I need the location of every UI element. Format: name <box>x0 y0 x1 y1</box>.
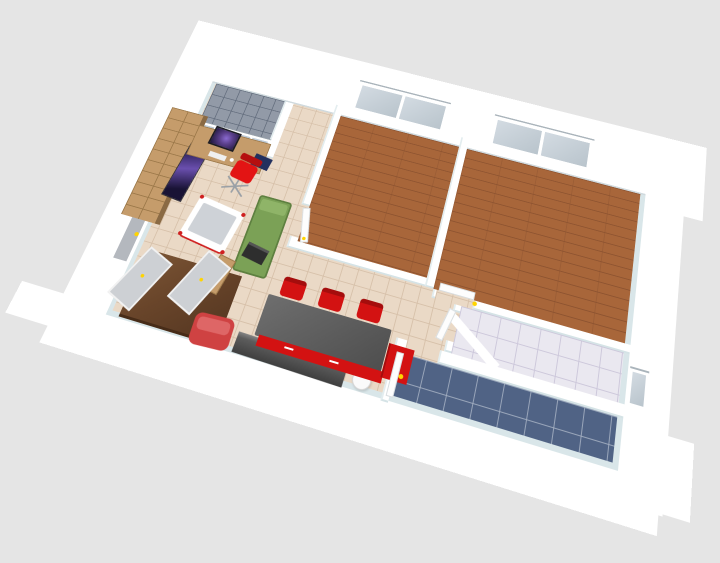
cabinet-handle <box>329 360 339 365</box>
window-pane <box>630 372 646 407</box>
render-viewport[interactable] <box>0 0 720 563</box>
window-pane <box>355 85 402 118</box>
daybed-pillow <box>258 198 288 216</box>
window-pane <box>399 96 446 129</box>
northeast-wall-fin <box>663 139 707 222</box>
apartment-floor-plan <box>75 35 670 505</box>
crib-foot <box>199 194 205 199</box>
crib-mattress <box>187 203 237 246</box>
bathroom-window <box>627 366 650 411</box>
armchair-cushion <box>195 315 231 336</box>
cabinet-handle <box>284 346 294 351</box>
